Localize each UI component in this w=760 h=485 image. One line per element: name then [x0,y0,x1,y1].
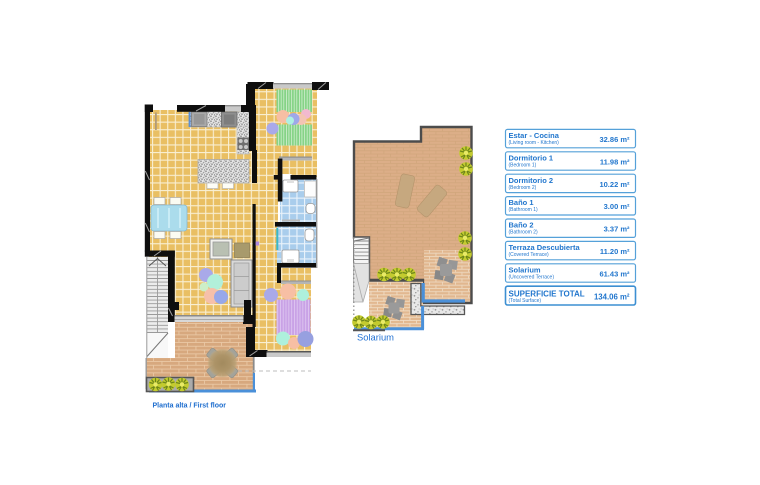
svg-text:(Bedroom 1): (Bedroom 1) [509,162,537,168]
svg-text:11.98 m²: 11.98 m² [600,157,630,166]
svg-text:Estar - Cocina: Estar - Cocina [509,131,560,140]
svg-text:Dormitorio 2: Dormitorio 2 [509,176,554,185]
svg-text:(Living room - Kitchen): (Living room - Kitchen) [509,140,560,146]
svg-text:(Total Surface): (Total Surface) [509,298,542,304]
svg-text:32.86 m²: 32.86 m² [599,135,630,144]
svg-text:Baño 2: Baño 2 [509,221,534,230]
svg-text:3.37 m²: 3.37 m² [604,225,630,234]
svg-text:Solarium: Solarium [509,265,541,274]
svg-text:(Bathroom 2): (Bathroom 2) [509,230,539,236]
svg-text:(Uncovered Terrace): (Uncovered Terrace) [509,274,555,280]
svg-text:(Bedroom 2): (Bedroom 2) [509,185,537,191]
svg-text:10.22 m²: 10.22 m² [599,180,630,189]
svg-text:(Covered Terrace): (Covered Terrace) [509,252,550,258]
svg-text:Planta alta / First floor: Planta alta / First floor [153,403,227,410]
svg-text:Terraza Descubierta: Terraza Descubierta [509,243,581,252]
svg-text:134.06 m²: 134.06 m² [594,292,630,301]
svg-text:11.20 m²: 11.20 m² [600,247,630,256]
svg-text:Dormitorio 1: Dormitorio 1 [509,153,554,162]
svg-text:SUPERFICIE TOTAL: SUPERFICIE TOTAL [509,289,585,298]
svg-text:Solarium: Solarium [357,332,394,343]
svg-text:3.00 m²: 3.00 m² [604,202,630,211]
svg-text:Baño 1: Baño 1 [509,198,534,207]
svg-text:(Bathroom 1): (Bathroom 1) [509,207,539,213]
svg-text:61.43 m²: 61.43 m² [599,269,630,278]
